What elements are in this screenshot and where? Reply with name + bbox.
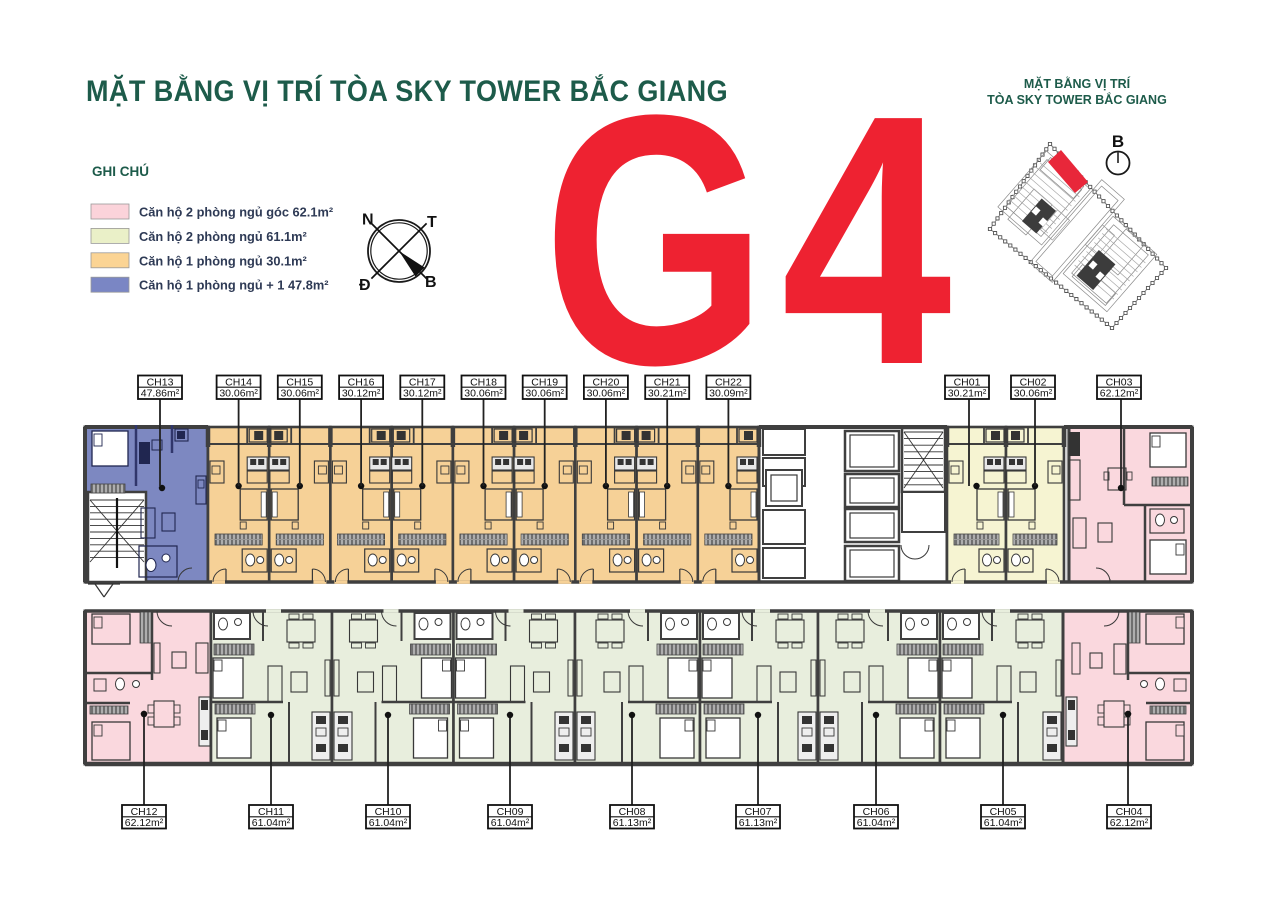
svg-text:30.06m²: 30.06m² xyxy=(219,388,258,400)
svg-text:B: B xyxy=(425,274,437,291)
svg-text:30.06m²: 30.06m² xyxy=(464,388,503,400)
svg-text:Căn hộ 2 phòng ngủ 61.1m²: Căn hộ 2 phòng ngủ 61.1m² xyxy=(139,229,307,244)
svg-text:30.21m²: 30.21m² xyxy=(948,388,987,400)
svg-text:62.12m²: 62.12m² xyxy=(1100,388,1139,400)
svg-text:61.04m²: 61.04m² xyxy=(984,817,1023,829)
svg-text:30.06m²: 30.06m² xyxy=(281,388,320,400)
svg-text:30.06m²: 30.06m² xyxy=(1014,388,1053,400)
svg-text:61.13m²: 61.13m² xyxy=(739,817,778,829)
svg-text:GHI CHÚ: GHI CHÚ xyxy=(92,164,149,179)
svg-text:30.12m²: 30.12m² xyxy=(403,388,442,400)
svg-text:61.04m²: 61.04m² xyxy=(369,817,408,829)
svg-text:62.12m²: 62.12m² xyxy=(125,817,164,829)
svg-text:61.04m²: 61.04m² xyxy=(491,817,530,829)
svg-text:61.04m²: 61.04m² xyxy=(252,817,291,829)
svg-text:61.13m²: 61.13m² xyxy=(613,817,652,829)
svg-text:B: B xyxy=(1112,132,1124,151)
svg-text:30.06m²: 30.06m² xyxy=(587,388,626,400)
svg-text:47.86m²: 47.86m² xyxy=(141,388,180,400)
svg-text:Căn hộ 2 phòng ngủ góc 62.1m²: Căn hộ 2 phòng ngủ góc 62.1m² xyxy=(139,205,333,220)
svg-text:61.04m²: 61.04m² xyxy=(857,817,896,829)
svg-text:Đ: Đ xyxy=(359,277,371,294)
svg-text:4: 4 xyxy=(781,42,954,439)
svg-text:30.06m²: 30.06m² xyxy=(525,388,564,400)
svg-text:T: T xyxy=(427,214,437,231)
svg-text:Căn hộ 1 phòng ngủ + 1 47.8m²: Căn hộ 1 phòng ngủ + 1 47.8m² xyxy=(139,278,329,293)
svg-text:30.09m²: 30.09m² xyxy=(709,388,748,400)
svg-text:MẶT BẰNG VỊ TRÍ: MẶT BẰNG VỊ TRÍ xyxy=(1024,76,1131,91)
svg-text:30.12m²: 30.12m² xyxy=(342,388,381,400)
svg-text:Căn hộ 1 phòng ngủ 30.1m²: Căn hộ 1 phòng ngủ 30.1m² xyxy=(139,253,307,268)
svg-text:62.12m²: 62.12m² xyxy=(1110,817,1149,829)
svg-text:N: N xyxy=(362,212,374,229)
svg-text:TÒA SKY TOWER BẮC GIANG: TÒA SKY TOWER BẮC GIANG xyxy=(987,92,1167,107)
svg-text:30.21m²: 30.21m² xyxy=(648,388,687,400)
